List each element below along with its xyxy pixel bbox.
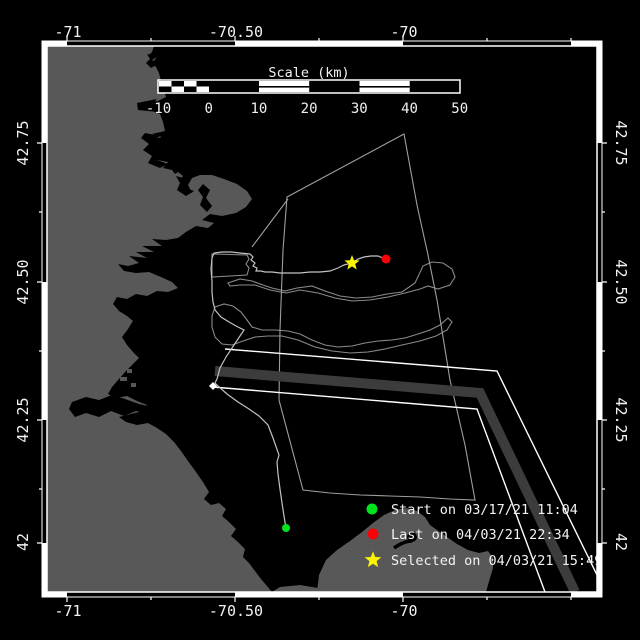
legend-start-dot — [367, 504, 378, 515]
legend-row-start[interactable]: Start on 03/17/21 11:04 — [367, 502, 578, 518]
lat-label-right-3: 42 — [612, 533, 630, 551]
last-marker[interactable] — [382, 255, 391, 264]
lat-label-left-0: 42.75 — [14, 120, 32, 165]
svg-text:40: 40 — [401, 101, 418, 117]
lat-label-right-2: 42.25 — [612, 397, 630, 442]
svg-text:20: 20 — [301, 101, 318, 117]
legend-selected-label: Selected on 04/03/21 15:49 — [391, 553, 602, 569]
lon-label-bottom-0: -71 — [54, 602, 81, 620]
lon-label-bottom-1: -70.50 — [209, 602, 263, 620]
legend-row-last[interactable]: Last on 04/03/21 22:34 — [368, 527, 570, 543]
lat-label-right-1: 42.50 — [612, 259, 630, 304]
lat-label-left-3: 42 — [14, 533, 32, 551]
lon-label-bottom-2: -70 — [390, 602, 417, 620]
legend-start-label: Start on 03/17/21 11:04 — [391, 502, 578, 518]
legend-last-label: Last on 04/03/21 22:34 — [391, 527, 570, 543]
lon-label-top-1: -70.50 — [209, 23, 263, 41]
start-marker[interactable] — [282, 524, 290, 532]
legend-last-dot — [368, 529, 379, 540]
svg-text:0: 0 — [204, 101, 212, 117]
lon-label-top-2: -70 — [390, 23, 417, 41]
lat-label-right-0: 42.75 — [612, 120, 630, 165]
map-surface[interactable]: Scale (km) -10 0 10 20 30 — [47, 46, 602, 592]
svg-text:10: 10 — [250, 101, 267, 117]
svg-text:-10: -10 — [146, 101, 171, 117]
drifter-track-map: Scale (km) -10 0 10 20 30 — [0, 0, 640, 640]
legend-row-selected[interactable]: Selected on 04/03/21 15:49 — [365, 551, 603, 569]
svg-text:50: 50 — [451, 101, 468, 117]
map-legend: Start on 03/17/21 11:04 Last on 04/03/21… — [365, 502, 603, 569]
lat-label-left-1: 42.50 — [14, 259, 32, 304]
svg-text:30: 30 — [351, 101, 368, 117]
scale-bar-title: Scale (km) — [268, 65, 349, 81]
lon-label-top-0: -71 — [54, 23, 81, 41]
lat-label-left-2: 42.25 — [14, 397, 32, 442]
